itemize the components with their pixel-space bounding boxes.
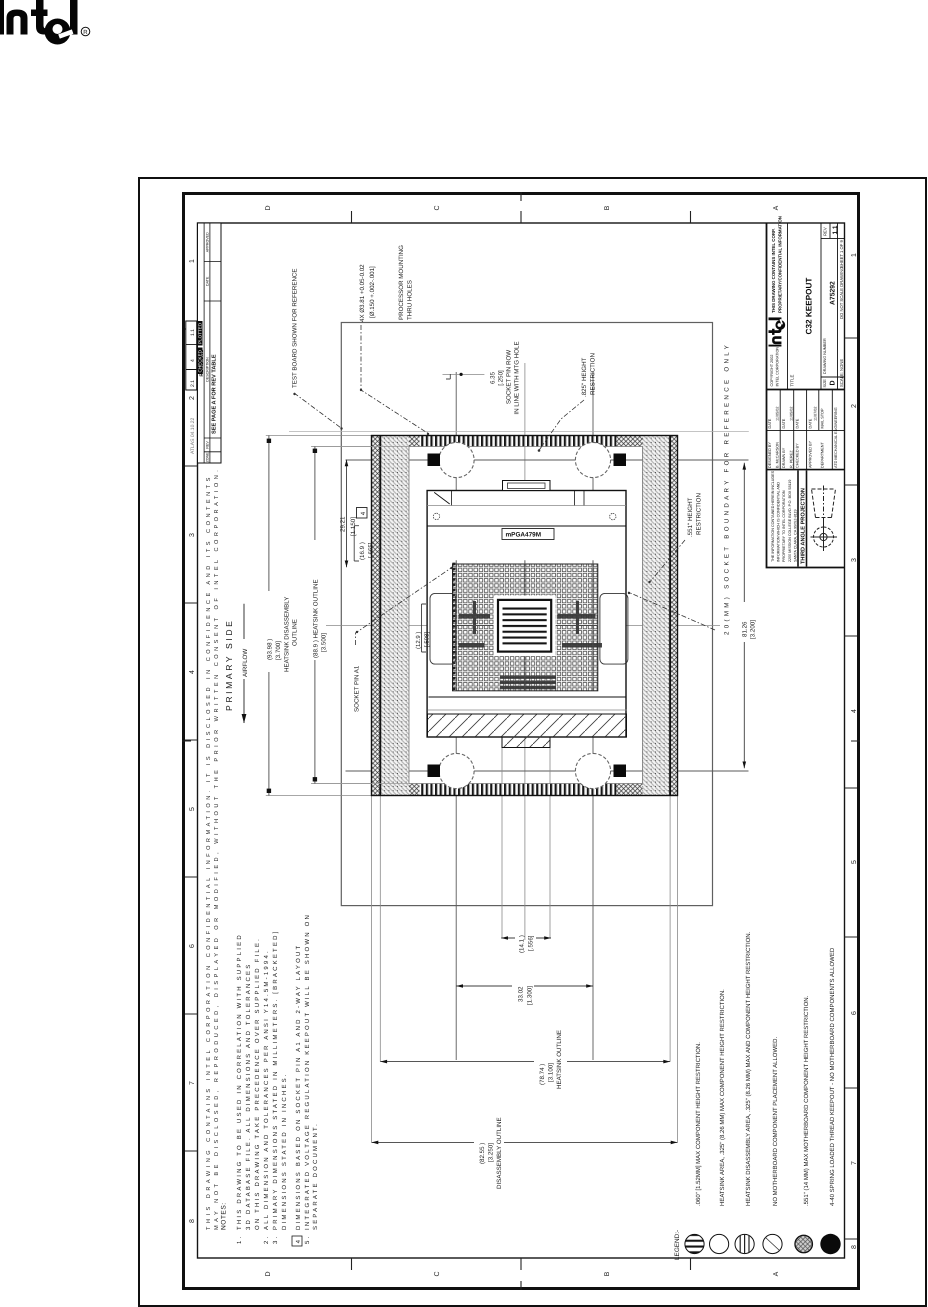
- svg-text:REV: REV: [205, 441, 209, 449]
- svg-text:DEPARTMENT: DEPARTMENT: [820, 442, 824, 468]
- svg-text:1: 1: [189, 259, 196, 263]
- svg-text:A75292: A75292: [829, 281, 836, 305]
- svg-text:.060" [1.52MM] MAX COMPONENT H: .060" [1.52MM] MAX COMPONENT HEIGHT REST…: [695, 1042, 702, 1206]
- svg-text:7: 7: [851, 1161, 858, 1165]
- svg-text:4: 4: [190, 359, 196, 362]
- svg-text:DATE: DATE: [768, 418, 772, 428]
- svg-text:SHEET 1 OF 9: SHEET 1 OF 9: [839, 239, 844, 268]
- svg-text:D: D: [265, 1271, 272, 1276]
- svg-text:DIMENSIONS BASED ON SOCKET PIN: DIMENSIONS BASED ON SOCKET PIN A1 AND 2-…: [295, 944, 302, 1230]
- svg-text:(93.98 ): (93.98 ): [266, 639, 273, 660]
- svg-text:11/05/02: 11/05/02: [789, 407, 793, 422]
- svg-text:DATE: DATE: [795, 418, 799, 428]
- svg-text:HEATSINK DISASSEMBLY AREA, .32: HEATSINK DISASSEMBLY AREA, .325" (8.26 M…: [745, 931, 752, 1206]
- svg-text:R: R: [83, 29, 88, 36]
- svg-text:REV: REV: [822, 227, 827, 236]
- svg-text:D: D: [265, 205, 272, 210]
- svg-text:A: A: [773, 205, 780, 210]
- svg-text:5: 5: [851, 860, 858, 864]
- svg-text:11/07/02: 11/07/02: [813, 407, 817, 422]
- svg-text:RESTRICTION: RESTRICTION: [589, 353, 596, 395]
- svg-text:C: C: [434, 1271, 441, 1276]
- svg-text:[3.250]: [3.250]: [487, 1143, 494, 1162]
- svg-text:SIZE: SIZE: [822, 379, 826, 388]
- svg-text:4-40 SPRING LOADED THREAD KEEP: 4-40 SPRING LOADED THREAD KEEPOUT - NO M…: [829, 947, 836, 1206]
- svg-text:CHECKED BY: CHECKED BY: [795, 443, 799, 468]
- svg-text:MAIL STOP: MAIL STOP: [820, 408, 824, 429]
- svg-text:DISASSEMBLY OUTLINE: DISASSEMBLY OUTLINE: [496, 1117, 503, 1189]
- svg-text:1.: 1.: [236, 1235, 243, 1244]
- svg-text:PROPRIETARY/CONFIDENTIAL INFOR: PROPRIETARY/CONFIDENTIAL INFORMATION: [777, 216, 782, 313]
- svg-text:DIMENSIONS STATED IN INCHES.: DIMENSIONS STATED IN INCHES.: [281, 1072, 288, 1230]
- svg-text:5: 5: [189, 807, 196, 811]
- svg-text:AIRFLOW: AIRFLOW: [241, 649, 248, 677]
- svg-text:2: 2: [189, 396, 196, 400]
- svg-text:APPROVED BY: APPROVED BY: [808, 440, 812, 468]
- svg-text:SANTA CLARA, CA 95052-8119: SANTA CLARA, CA 95052-8119: [793, 509, 797, 562]
- svg-text:3: 3: [189, 533, 196, 537]
- svg-text:4: 4: [851, 709, 858, 713]
- svg-text:ON THIS DRAWING TAKE PRECEDENC: ON THIS DRAWING TAKE PRECEDENCE OVER SUP…: [254, 937, 261, 1230]
- svg-text:[3.200]: [3.200]: [749, 620, 756, 639]
- svg-text:.551" HEIGHT: .551" HEIGHT: [687, 497, 694, 537]
- svg-text:SEPARATE DOCUMENT.: SEPARATE DOCUMENT.: [312, 1122, 319, 1230]
- svg-text:SCALE: NONE: SCALE: NONE: [839, 359, 844, 387]
- svg-text:(14.1 ): (14.1 ): [518, 935, 525, 953]
- svg-text:DESCRIPTION: DESCRIPTION: [205, 357, 209, 382]
- svg-text:(82.55 ): (82.55 ): [479, 1143, 486, 1164]
- svg-text:TITLE: TITLE: [789, 374, 794, 386]
- svg-text:PRIMARY SIDE: PRIMARY SIDE: [224, 619, 234, 712]
- svg-text:[1.150]: [1.150]: [350, 517, 357, 536]
- svg-text:(78.74 ): (78.74 ): [539, 1064, 546, 1085]
- svg-text:20(MM) SOCKET BOUNDARY FOR REF: 20(MM) SOCKET BOUNDARY FOR REFERENCE ONL…: [723, 342, 730, 635]
- svg-text:DATE: DATE: [781, 418, 785, 428]
- svg-text:TEST BOARD SHOWN FOR REFERENCE: TEST BOARD SHOWN FOR REFERENCE: [291, 268, 298, 388]
- svg-text:[.556]: [.556]: [527, 935, 534, 951]
- svg-text:2.1: 2.1: [190, 380, 196, 387]
- svg-text:THRU HOLES: THRU HOLES: [406, 280, 413, 320]
- svg-text:ATD MECHANICAL ENGINEERING: ATD MECHANICAL ENGINEERING: [834, 407, 838, 468]
- svg-text:CHECKED: CHECKED: [197, 349, 202, 372]
- svg-text:[.508]: [.508]: [423, 632, 430, 647]
- svg-text:RESTRICTION: RESTRICTION: [695, 493, 702, 535]
- svg-text:ALL DIMENSION AND TOLERANCES P: ALL DIMENSION AND TOLERANCES PER ANSI Y1…: [263, 949, 270, 1230]
- svg-text:7: 7: [189, 1081, 196, 1085]
- svg-text:B: B: [604, 1271, 611, 1276]
- svg-text:[.665]: [.665]: [367, 542, 374, 558]
- svg-text:PROPRIETARY TO INTEL CORPORATI: PROPRIETARY TO INTEL CORPORATION: [782, 490, 786, 562]
- svg-text:6.35: 6.35: [489, 371, 496, 384]
- svg-text:DATE: DATE: [205, 276, 209, 286]
- svg-text:3: 3: [851, 558, 858, 562]
- svg-text:HEATSINK DISASSEMBLY: HEATSINK DISASSEMBLY: [283, 597, 290, 672]
- svg-text:[.250]: [.250]: [497, 370, 504, 386]
- svg-text:2.: 2.: [263, 1235, 270, 1244]
- svg-text:PRIMARY DIMENSIONS STATED IN M: PRIMARY DIMENSIONS STATED IN MILLIMETERS…: [272, 929, 279, 1230]
- svg-text:DRAWING NUMBER: DRAWING NUMBER: [822, 338, 826, 374]
- svg-text:2200 MISSION COLLEGE BLVD. P.: 2200 MISSION COLLEGE BLVD. P.O. BOX 5811…: [788, 480, 792, 562]
- svg-text:3D DATABASE FILE. ALL DIMENSIO: 3D DATABASE FILE. ALL DIMENSIONS AND TOL…: [245, 963, 252, 1230]
- svg-text:THE INFORMATION CONTAINED HERE: THE INFORMATION CONTAINED HEREIN INCLUDE…: [771, 470, 775, 562]
- svg-text:[3.500]: [3.500]: [320, 633, 327, 652]
- svg-text:DATE: DATE: [808, 418, 812, 428]
- svg-text:4X Ø3.81 +0.05-0.02: 4X Ø3.81 +0.05-0.02: [359, 264, 366, 322]
- svg-text:1: 1: [851, 253, 858, 257]
- svg-text:OUTLINE: OUTLINE: [291, 619, 298, 646]
- svg-text:4: 4: [359, 511, 366, 515]
- svg-text:2: 2: [851, 404, 858, 408]
- svg-text:HEATSINK AREA, .325" (8.26 MM): HEATSINK AREA, .325" (8.26 MM) MAX COMPO…: [719, 989, 726, 1206]
- svg-text:DO NOT SCALE DRAWING: DO NOT SCALE DRAWING: [839, 267, 844, 319]
- svg-text:3.: 3.: [272, 1235, 279, 1244]
- svg-text:.551" (14 MM) MAX MOTHERBOARD: .551" (14 MM) MAX MOTHERBOARD COMPONENT …: [803, 995, 810, 1206]
- svg-text:THIS DRAWING CONTAINS INTEL CO: THIS DRAWING CONTAINS INTEL CORPORATION …: [206, 474, 212, 1230]
- svg-text:C32 KEEPOUT: C32 KEEPOUT: [804, 278, 813, 335]
- svg-text:B. McCARSON: B. McCARSON: [775, 442, 779, 468]
- svg-text:INTEGRATED VOLTAGE REGULATION: INTEGRATED VOLTAGE REGULATION KEEPOUT WI…: [304, 913, 311, 1230]
- svg-text:INTEL CORPORATION: INTEL CORPORATION: [775, 347, 779, 387]
- svg-text:5.: 5.: [304, 1235, 311, 1244]
- svg-text:.825" HEIGHT: .825" HEIGHT: [581, 357, 588, 397]
- svg-text:8: 8: [189, 1219, 196, 1223]
- svg-text:MAY NOT BE DISCLOSED, REPRODUC: MAY NOT BE DISCLOSED, REPRODUCED, DISPLA…: [214, 467, 220, 1230]
- svg-text:C: C: [434, 205, 441, 210]
- svg-text:DRAWN BY: DRAWN BY: [781, 447, 785, 468]
- svg-text:mPGA479M: mPGA479M: [505, 532, 541, 539]
- svg-text:THIS DRAWING TO BE USED IN COR: THIS DRAWING TO BE USED IN CORRELATION W…: [236, 933, 243, 1230]
- svg-text:29.21: 29.21: [339, 516, 346, 532]
- svg-text:[1.300]: [1.300]: [526, 986, 533, 1005]
- svg-text:A: A: [773, 1271, 780, 1276]
- svg-text:(12.9 ): (12.9 ): [415, 632, 422, 649]
- svg-text:81.26: 81.26: [741, 621, 748, 637]
- svg-text:THIRD ANGLE PROJECTION: THIRD ANGLE PROJECTION: [800, 488, 806, 564]
- svg-text:[Ø.150 +.002-.001]: [Ø.150 +.002-.001]: [369, 266, 376, 318]
- svg-text:8: 8: [851, 1245, 858, 1249]
- svg-text:COPYRIGHT 2002: COPYRIGHT 2002: [770, 354, 774, 386]
- svg-text:PLOTTED: PLOTTED: [197, 322, 202, 344]
- svg-text:IN LINE WITH MTG HOLE: IN LINE WITH MTG HOLE: [513, 341, 520, 414]
- svg-text:[3.700]: [3.700]: [275, 641, 282, 660]
- svg-text:11/05/02: 11/05/02: [775, 407, 779, 422]
- svg-text:6: 6: [189, 944, 196, 948]
- svg-text:SEE PAGE A FOR REV TABLE: SEE PAGE A FOR REV TABLE: [211, 354, 217, 434]
- svg-text:INFORMATION WHICH IS CONFIDENT: INFORMATION WHICH IS CONFIDENTIAL AND: [776, 482, 780, 562]
- svg-text:LEGEND:-: LEGEND:-: [674, 1230, 681, 1260]
- svg-text:(16.9 ): (16.9 ): [359, 542, 366, 560]
- svg-text:DESIGNED BY: DESIGNED BY: [768, 442, 772, 468]
- svg-text:HEATSINK OUTLINE: HEATSINK OUTLINE: [556, 1030, 563, 1089]
- svg-text:R. PEREZ: R. PEREZ: [789, 450, 793, 468]
- svg-text:B: B: [604, 205, 611, 210]
- svg-text:33.02: 33.02: [517, 986, 524, 1002]
- svg-text:6: 6: [851, 1011, 858, 1015]
- svg-text:(88.9 ) HEATSINK OUTLINE: (88.9 ) HEATSINK OUTLINE: [312, 579, 319, 658]
- svg-text:SOCKET PIN A1: SOCKET PIN A1: [353, 665, 360, 712]
- svg-text:NO MOTHERBOARD COMPONENT PLACE: NO MOTHERBOARD COMPONENT PLACEMENT ALLOW…: [772, 1037, 779, 1206]
- svg-text:ATLAS 04.10.22: ATLAS 04.10.22: [190, 417, 196, 454]
- svg-text:1.1: 1.1: [190, 329, 196, 336]
- svg-text:THIS DRAWING CONTAINS INTEL CO: THIS DRAWING CONTAINS INTEL CORP.: [771, 228, 776, 313]
- svg-text:APPROVED: APPROVED: [205, 232, 209, 252]
- svg-text:SOCKET PIN ROW: SOCKET PIN ROW: [505, 350, 512, 404]
- svg-text:D: D: [829, 380, 836, 385]
- svg-text:PROCESSOR MOUNTING: PROCESSOR MOUNTING: [398, 245, 405, 320]
- svg-text:[3.100]: [3.100]: [547, 1063, 554, 1082]
- svg-text:ZONE: ZONE: [205, 452, 209, 463]
- svg-text:1.1: 1.1: [832, 225, 839, 234]
- svg-text:4: 4: [189, 670, 196, 674]
- svg-text:NOTES:: NOTES:: [220, 1202, 227, 1230]
- svg-text:4: 4: [295, 1238, 302, 1244]
